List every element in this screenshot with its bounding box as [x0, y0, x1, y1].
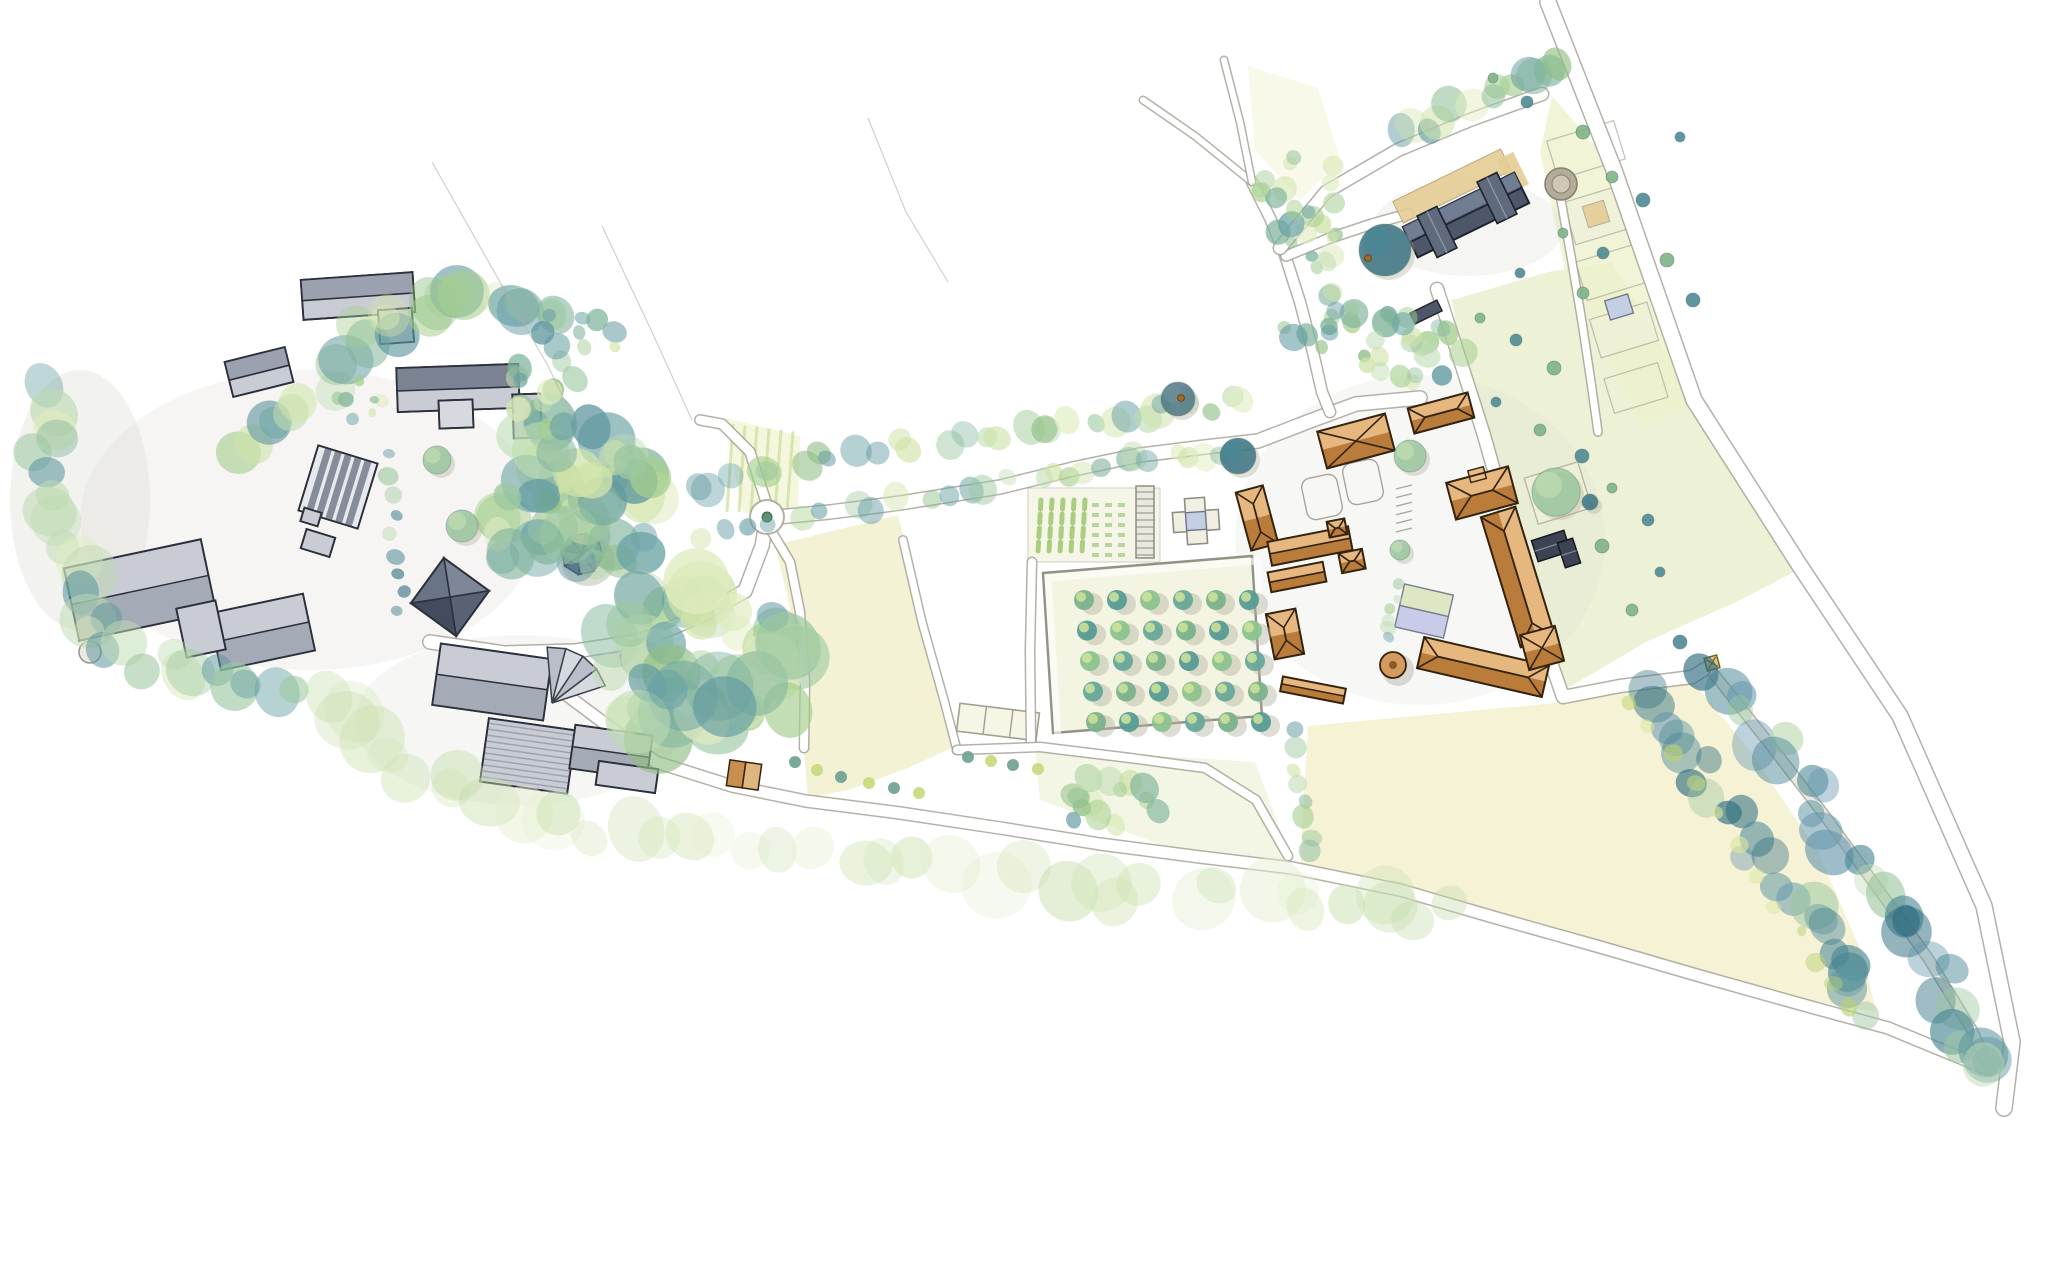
shrub-dot [913, 787, 925, 799]
orchard-tree-highlight [1178, 623, 1188, 633]
orchard-tree-highlight [1244, 623, 1254, 633]
orchard-tree-highlight [1115, 653, 1125, 663]
parkland-tree-dot [1595, 539, 1609, 553]
tree-highlight [425, 448, 440, 463]
ridge-line [1350, 561, 1355, 562]
tree-blob [714, 516, 738, 542]
veg-row [1038, 500, 1041, 552]
orchard-tree-highlight [1088, 714, 1098, 724]
parkland-tree-dot [1521, 96, 1533, 108]
parkland-tree-dot [1673, 635, 1687, 649]
field-shed [726, 760, 761, 790]
parkland-tree-dot [1577, 287, 1589, 299]
courtyard-building [1338, 549, 1365, 573]
tree-blob [980, 422, 1015, 454]
tree-blob [1322, 174, 1339, 192]
shrub-dot [1032, 763, 1044, 775]
tree-blob [575, 337, 593, 357]
road-surface [1030, 562, 1032, 745]
tree-blob [1285, 720, 1305, 739]
tree-highlight [1536, 472, 1562, 498]
farm-roof [439, 399, 474, 428]
parkland-tree-dot [1576, 125, 1590, 139]
orchard-tree-highlight [1250, 684, 1260, 694]
tree-blob [571, 462, 613, 498]
orchard-tree-highlight [1211, 623, 1221, 633]
orchard-tree-highlight [1112, 623, 1122, 633]
tree-blob [438, 270, 490, 320]
orchard-tree-highlight [1253, 714, 1263, 724]
parkland-tree-dot [1475, 313, 1485, 323]
courtyard-building [1327, 518, 1348, 537]
pencil-track-line [868, 118, 948, 282]
veg-row [1049, 500, 1052, 552]
shrub-dot [985, 755, 997, 767]
parkland-tree-dot [1597, 247, 1609, 259]
orchard-tree-highlight [1079, 623, 1089, 633]
tree-highlight [448, 512, 466, 530]
ridge-line [1335, 528, 1339, 529]
parkland-tree-dot [1547, 361, 1561, 375]
parkland-tree-dot [1642, 514, 1654, 526]
parkland-tree-dot [1636, 193, 1650, 207]
orchard-tree-highlight [1151, 684, 1161, 694]
marker-dot [1365, 255, 1372, 262]
parkland-tree-dot [1626, 604, 1638, 616]
tree-blob [866, 441, 889, 464]
shrub-dot [962, 751, 974, 763]
parkland-tree-dot [1575, 449, 1589, 463]
veg-row [1082, 500, 1085, 552]
parkland-tree-dot [1655, 567, 1665, 577]
tree-highlight [1392, 542, 1403, 553]
tree-blob [1805, 953, 1825, 972]
shrub-dot [1007, 759, 1019, 771]
orchard-tree-highlight [1184, 684, 1194, 694]
orchard-tree-highlight [1085, 684, 1095, 694]
orchard-tree-highlight [1142, 592, 1152, 602]
parkland-tree-dot [1491, 397, 1501, 407]
tree-blob [1199, 400, 1224, 425]
orchard-tree-highlight [1121, 714, 1131, 724]
tree-highlight [1223, 441, 1243, 461]
shrub-dot [789, 756, 801, 768]
orchard-tree-highlight [1208, 592, 1218, 602]
site-plan-page: Hand-painted watercolour estate masterpl… [0, 0, 2060, 1280]
site-plan-illustration [0, 0, 2060, 1280]
orchard-tree-highlight [1214, 653, 1224, 663]
orchard-tree-highlight [1217, 684, 1227, 694]
marker-dot [1178, 395, 1185, 402]
tree-blob [689, 527, 712, 551]
parkland-tree-dot [1660, 253, 1674, 267]
veg-row [1071, 500, 1074, 552]
veg-row [1060, 500, 1063, 552]
parkland-tree-dot [1607, 483, 1617, 493]
orchard-tree-highlight [1145, 623, 1155, 633]
orchard-tree-highlight [1082, 653, 1092, 663]
shed-roof-light [742, 762, 761, 790]
orchard-tree-highlight [1181, 653, 1191, 663]
orchard-tree-highlight [1187, 714, 1197, 724]
orchard-tree-highlight [1175, 592, 1185, 602]
parkland-tree-dot [1606, 171, 1618, 183]
orchard-tree-highlight [1076, 592, 1086, 602]
orchard-tree-highlight [1241, 592, 1251, 602]
dovecote-lantern [1389, 661, 1397, 669]
tree-highlight [1363, 228, 1392, 257]
parkland-tree-dot [1534, 424, 1546, 436]
shrub-dot [811, 764, 823, 776]
parkland-tree-dot [1686, 293, 1700, 307]
tree-blob [572, 324, 587, 341]
tree-highlight [1396, 442, 1414, 460]
shrub-dot [863, 777, 875, 789]
parkland-tree-dot [1488, 73, 1498, 83]
orchard-tree-highlight [1118, 684, 1128, 694]
tree-blob [1160, 855, 1248, 943]
fountain-inner [1552, 175, 1570, 193]
orchard-tree-highlight [1109, 592, 1119, 602]
parkland-tree-dot [1675, 132, 1685, 142]
pond-water [1185, 511, 1206, 530]
shrub-dot [835, 771, 847, 783]
parkland-tree-dot [1515, 268, 1525, 278]
tree-blob [1323, 192, 1345, 213]
parkland-tree-dot [1558, 228, 1568, 238]
parkland-tree-dot [1510, 334, 1522, 346]
orchard-tree-highlight [1247, 653, 1257, 663]
orchard-tree-highlight [1148, 653, 1158, 663]
tree-highlight [1583, 495, 1592, 504]
orchard-tree-highlight [1154, 714, 1164, 724]
glasshouse-strip [1136, 486, 1154, 558]
orchard-tree-highlight [1220, 714, 1230, 724]
courtyard-building [1520, 626, 1564, 670]
shrub-dot [888, 782, 900, 794]
tree-blob [782, 818, 843, 878]
farm-building [439, 399, 474, 428]
